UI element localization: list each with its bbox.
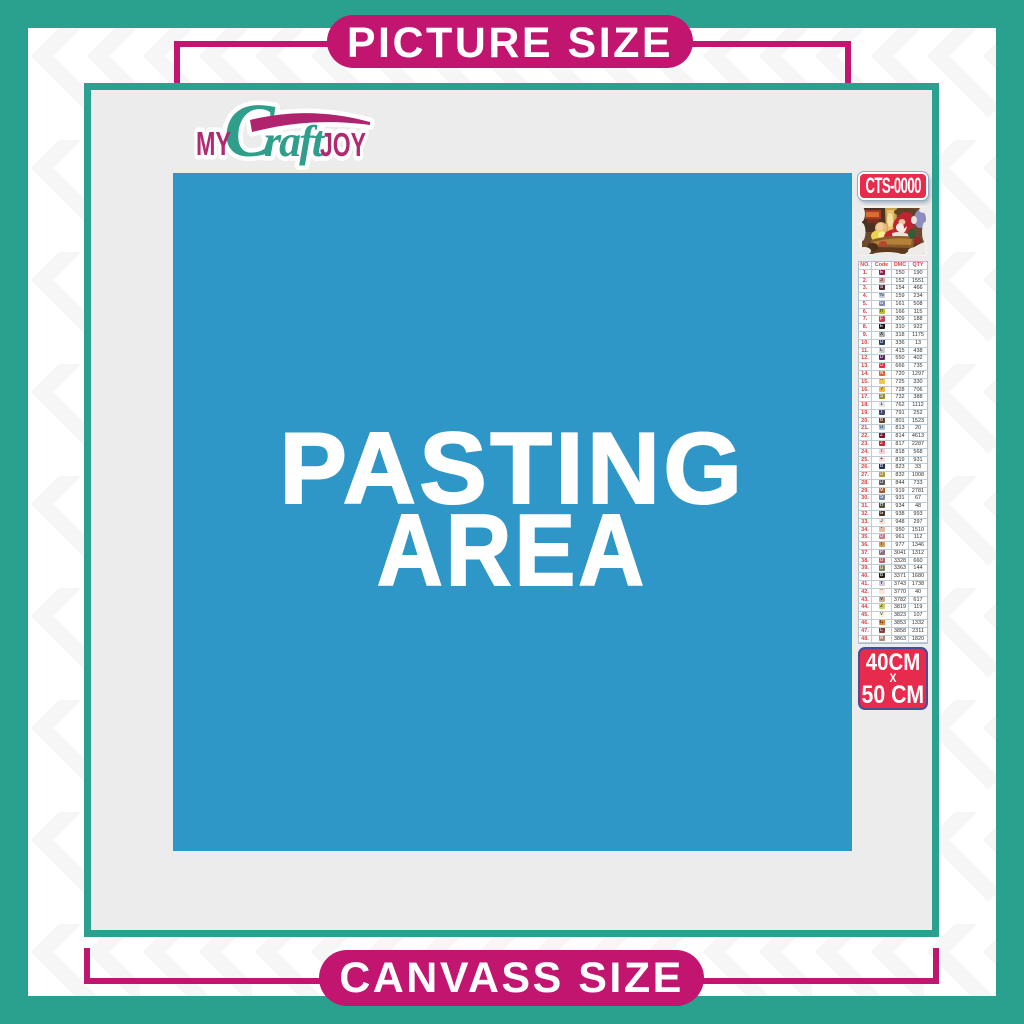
svg-text:MY: MY <box>196 125 231 162</box>
svg-text:JOY: JOY <box>320 126 366 163</box>
